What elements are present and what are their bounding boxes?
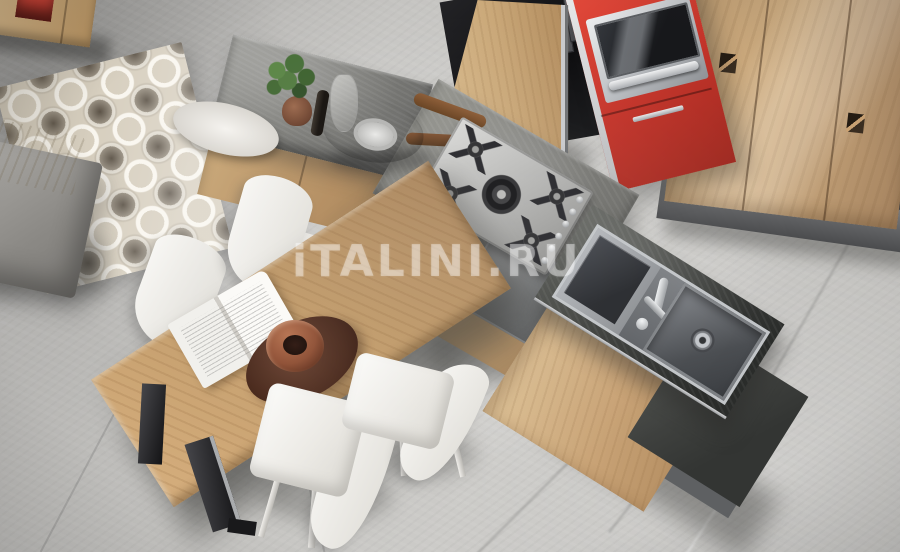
kitchen-photo: iTALINI.RU xyxy=(0,0,900,552)
table-leg xyxy=(138,383,166,464)
bowl-opening xyxy=(283,335,307,355)
door-seam xyxy=(823,0,854,221)
drawer-handle xyxy=(632,105,684,122)
door-seam xyxy=(60,0,70,44)
faucet-base xyxy=(634,316,651,333)
drain xyxy=(686,324,719,357)
decorative-bowl xyxy=(266,320,324,372)
watermark: iTALINI.RU xyxy=(292,236,632,287)
potted-plant xyxy=(256,48,326,104)
control-knob xyxy=(561,219,571,229)
door-seam xyxy=(742,0,773,211)
red-open-shelf xyxy=(15,0,55,22)
door-handle xyxy=(846,113,865,134)
door-handle xyxy=(718,53,737,74)
oven xyxy=(585,0,709,104)
pan-lid-handle xyxy=(351,115,400,154)
